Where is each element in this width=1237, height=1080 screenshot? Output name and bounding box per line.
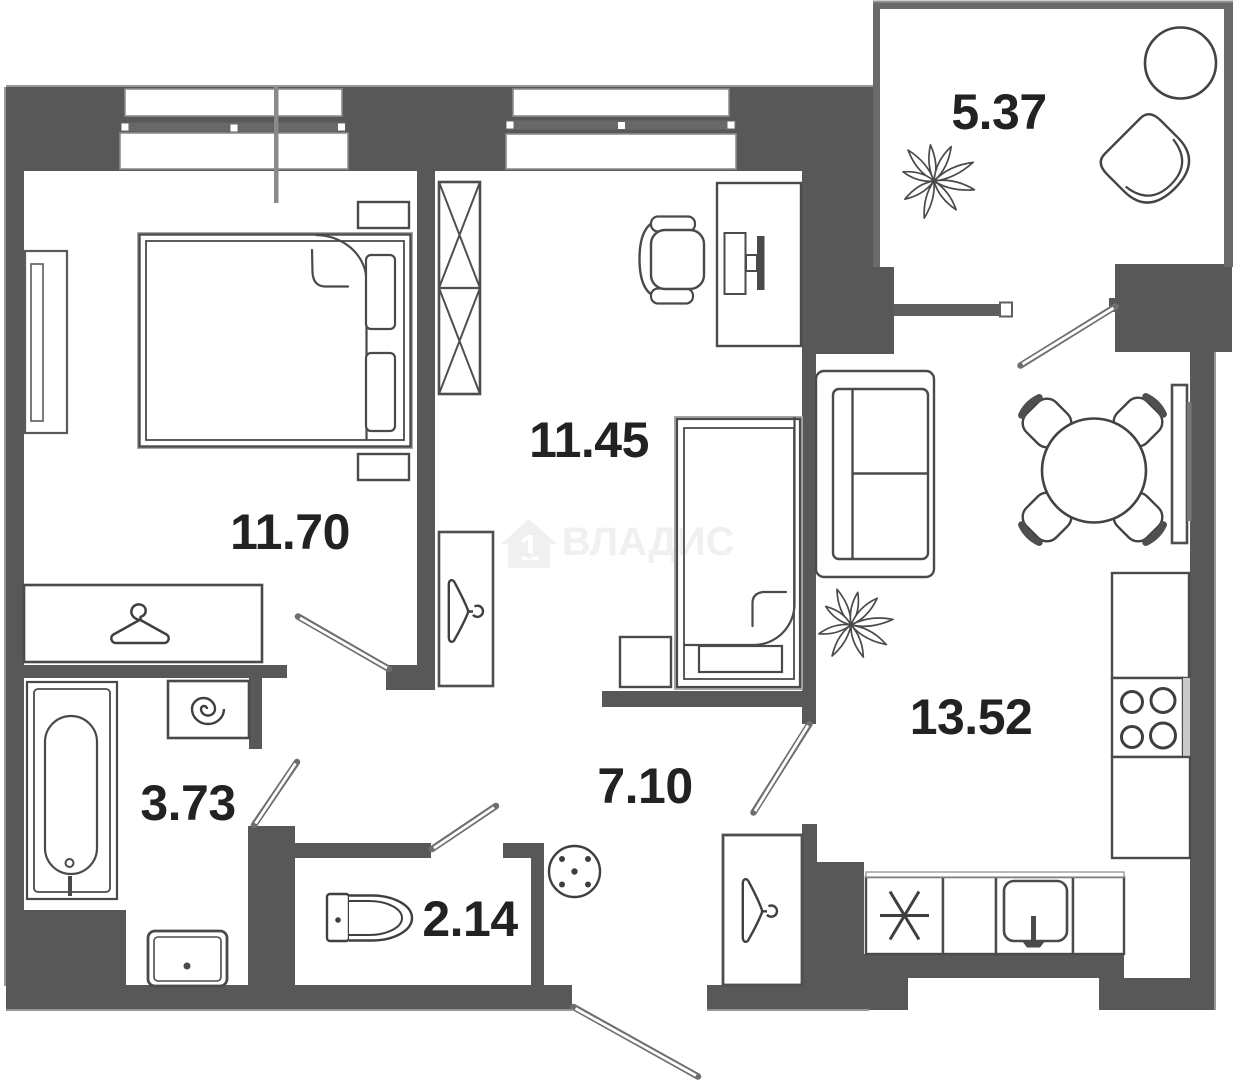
svg-text:11.45: 11.45 [529,412,649,468]
svg-text:1: 1 [519,527,539,568]
svg-text:ВЛАДИС: ВЛАДИС [562,520,734,564]
svg-text:11.70: 11.70 [230,504,350,560]
svg-text:2.14: 2.14 [422,891,518,947]
svg-text:3.73: 3.73 [140,775,235,831]
svg-text:7.10: 7.10 [597,758,692,814]
svg-text:13.52: 13.52 [910,689,1033,745]
svg-text:5.37: 5.37 [951,84,1046,140]
